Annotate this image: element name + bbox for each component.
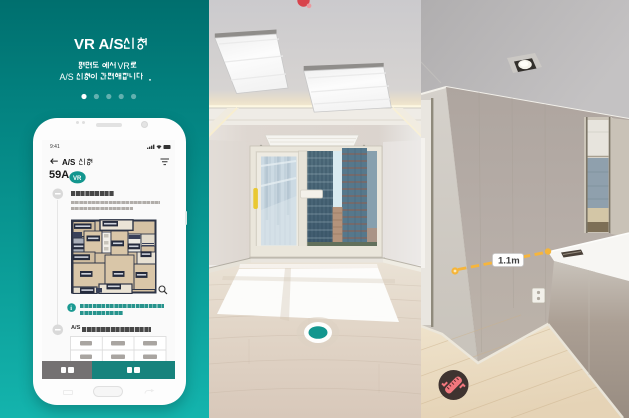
svg-text:VR: VR bbox=[118, 61, 130, 71]
svg-text:1.1m: 1.1m bbox=[498, 256, 520, 267]
svg-text:i: i bbox=[70, 305, 72, 312]
svg-text:A/S: A/S bbox=[60, 72, 74, 82]
svg-text:VR A/S: VR A/S bbox=[74, 36, 123, 53]
svg-text:VR: VR bbox=[73, 176, 82, 182]
svg-text:A/S: A/S bbox=[62, 158, 76, 167]
